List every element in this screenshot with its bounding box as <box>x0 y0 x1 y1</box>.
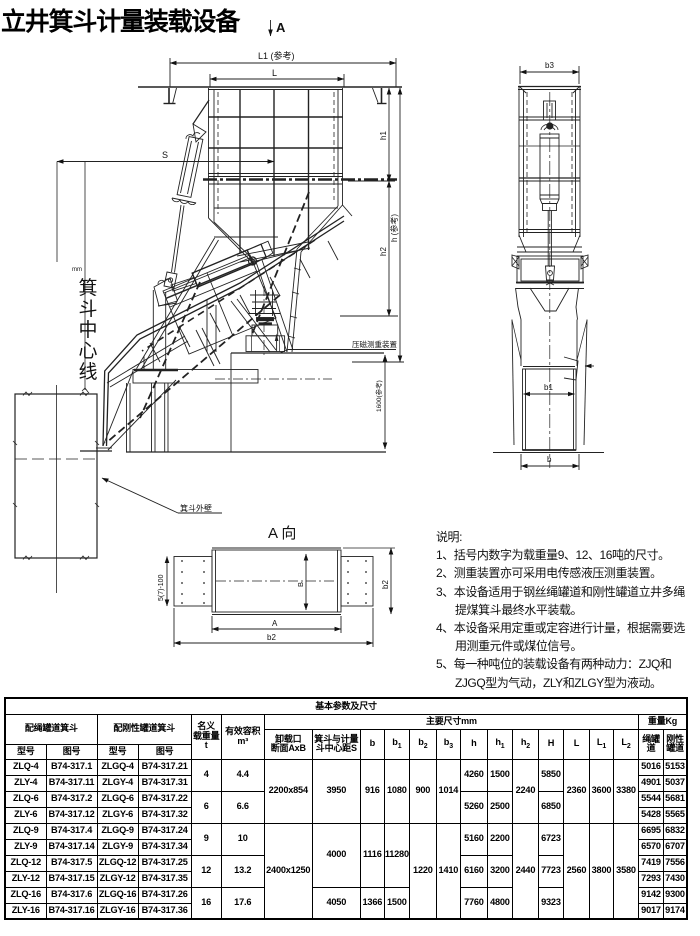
svg-text:压磁测重装置: 压磁测重装置 <box>352 339 397 349</box>
svg-text:b2: b2 <box>381 580 390 589</box>
svg-text:A: A <box>276 20 286 35</box>
svg-text:b1: b1 <box>544 383 553 392</box>
svg-text:箕: 箕 <box>78 277 97 299</box>
svg-text:L: L <box>272 68 277 78</box>
svg-text:L1 (参考): L1 (参考) <box>258 50 295 61</box>
svg-text:斗: 斗 <box>78 299 97 320</box>
svg-text:mm: mm <box>72 267 82 273</box>
svg-text:中: 中 <box>78 319 97 341</box>
svg-text:h2: h2 <box>379 247 388 256</box>
svg-text:箕斗外壁: 箕斗外壁 <box>180 503 212 513</box>
svg-text:5(7)-100: 5(7)-100 <box>158 574 165 601</box>
svg-text:b2: b2 <box>267 633 276 642</box>
svg-text:h (参考): h (参考) <box>389 214 399 242</box>
svg-text:1600(参考): 1600(参考) <box>374 380 383 412</box>
svg-text:b: b <box>547 455 552 464</box>
svg-text:A: A <box>272 619 278 628</box>
svg-text:b3: b3 <box>545 61 554 70</box>
svg-text:A 向: A 向 <box>268 525 296 542</box>
svg-text:h1: h1 <box>379 131 388 140</box>
svg-text:线: 线 <box>78 361 97 383</box>
svg-text:B: B <box>296 582 305 587</box>
svg-text:S: S <box>162 150 168 160</box>
svg-text:心: 心 <box>78 341 97 362</box>
